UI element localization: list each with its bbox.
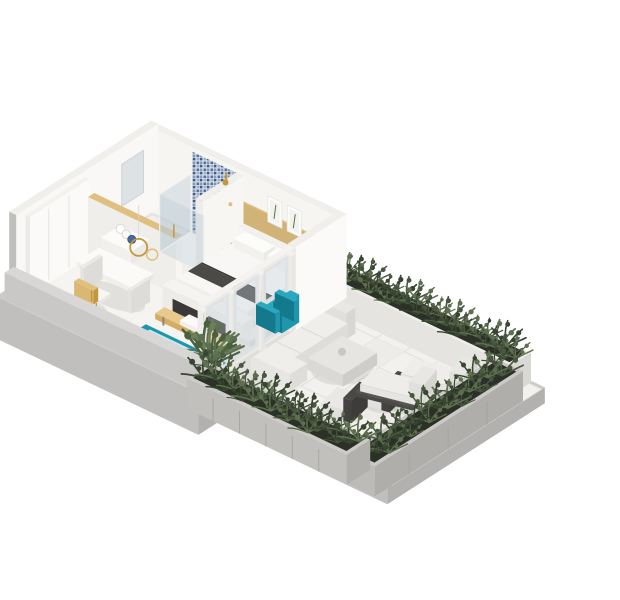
shower-valve xyxy=(228,202,232,206)
isometric-suite-scene xyxy=(0,0,620,600)
floorplan-3d-render xyxy=(0,0,620,600)
table-decor xyxy=(338,348,346,356)
shower-head xyxy=(223,180,229,186)
